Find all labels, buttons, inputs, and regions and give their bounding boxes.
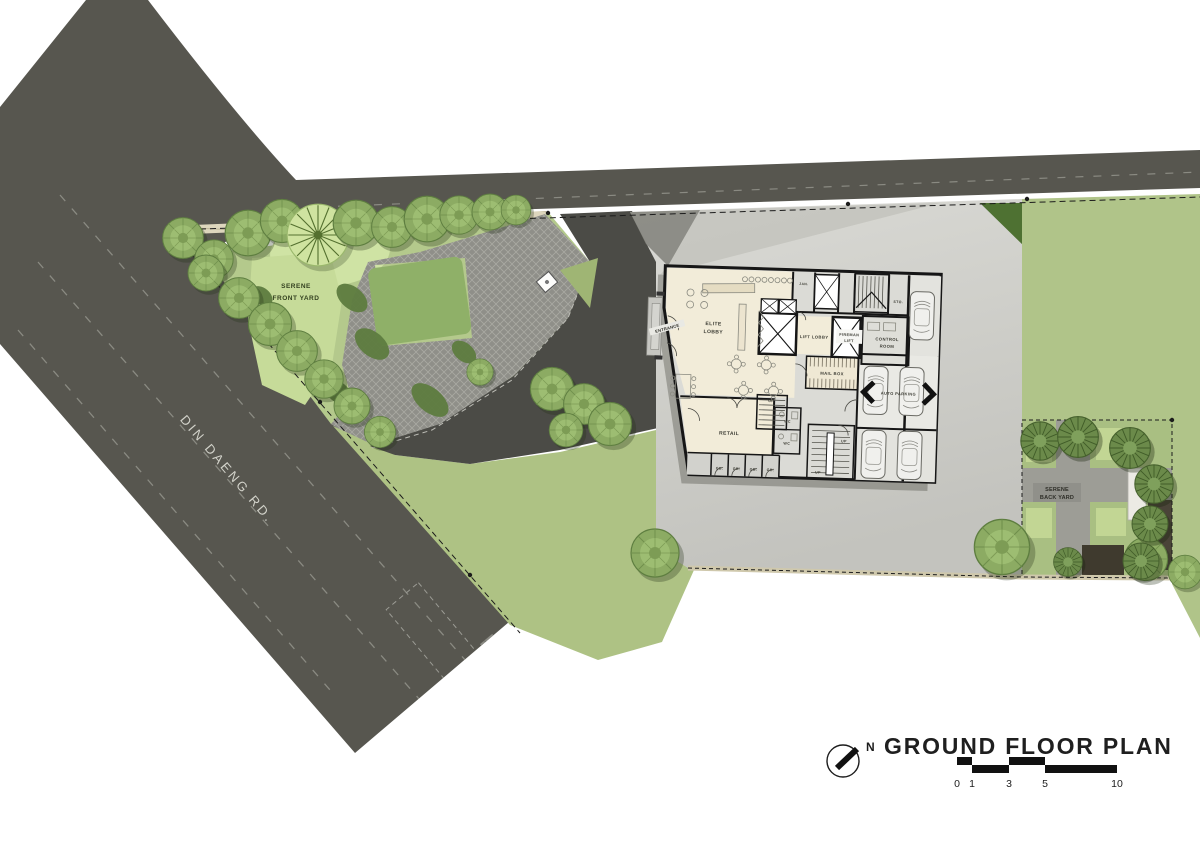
up-label-1: UP — [768, 399, 774, 403]
north-arrow: N — [827, 740, 875, 777]
scale-tick-1: 1 — [969, 778, 975, 790]
gb-label-3: GB. — [750, 467, 758, 471]
scale-tick-5: 5 — [1042, 778, 1048, 790]
lift-lobby-label: LIFT LOBBY — [800, 334, 829, 340]
car-icon — [861, 430, 886, 479]
gb-corridor-floor — [687, 453, 780, 478]
front-yard-label-line2: FRONT YARD — [273, 295, 320, 302]
fireman-lift-label-line1: FIREMAN — [839, 333, 859, 338]
scale-tick-3: 3 — [1006, 778, 1012, 790]
up-label-3: UP — [815, 471, 821, 475]
retail-label: RETAIL — [719, 430, 739, 437]
back-yard-label-line2: BACK YARD — [1040, 495, 1074, 501]
jan-label: JAN. — [799, 282, 808, 286]
gb-label-2: GB. — [733, 467, 741, 471]
sto-label: STO. — [893, 300, 903, 304]
building: ENTRANCE ELITE LOBBY LIFT LOBBY FIREMAN … — [643, 265, 941, 482]
control-room-floor — [862, 318, 909, 365]
control-room-label-line1: CONTROL — [875, 336, 899, 342]
ground-floor-plan-sheet: DIN DAENG RD. SERENE FRONT YARD — [0, 0, 1200, 849]
gb-label-4: GB. — [767, 468, 775, 472]
car-icon — [897, 431, 922, 480]
north-label: N — [866, 740, 875, 754]
back-yard-label-line1: SERENE — [1045, 487, 1069, 493]
wc-label-2: WC — [783, 442, 790, 446]
gb-label-1: GB. — [716, 466, 724, 470]
mail-box-label: MAIL BOX — [820, 371, 844, 377]
site-plan-drawing: DIN DAENG RD. SERENE FRONT YARD — [0, 0, 1200, 849]
elite-lobby-label-line1: ELITE — [705, 321, 722, 328]
fireman-lift-label-line2: LIFT — [844, 339, 854, 343]
control-room-label-line2: ROOM — [880, 343, 895, 348]
scale-tick-10: 10 — [1111, 778, 1123, 790]
car-icon — [909, 291, 934, 340]
up-label-2: UP — [841, 439, 847, 443]
elite-lobby-label-line2: LOBBY — [703, 329, 723, 336]
tree-icon — [1168, 555, 1200, 592]
title-block: N GROUND FLOOR PLAN 0 1 3 5 10 — [827, 733, 1173, 790]
scale-tick-0: 0 — [954, 778, 960, 790]
scale-bar: 0 1 3 5 10 — [954, 757, 1123, 790]
garden-panel — [367, 256, 472, 346]
front-yard-label-line1: SERENE — [281, 283, 311, 290]
wc-label-1: WC — [784, 420, 791, 424]
plan-title: GROUND FLOOR PLAN — [884, 733, 1173, 759]
